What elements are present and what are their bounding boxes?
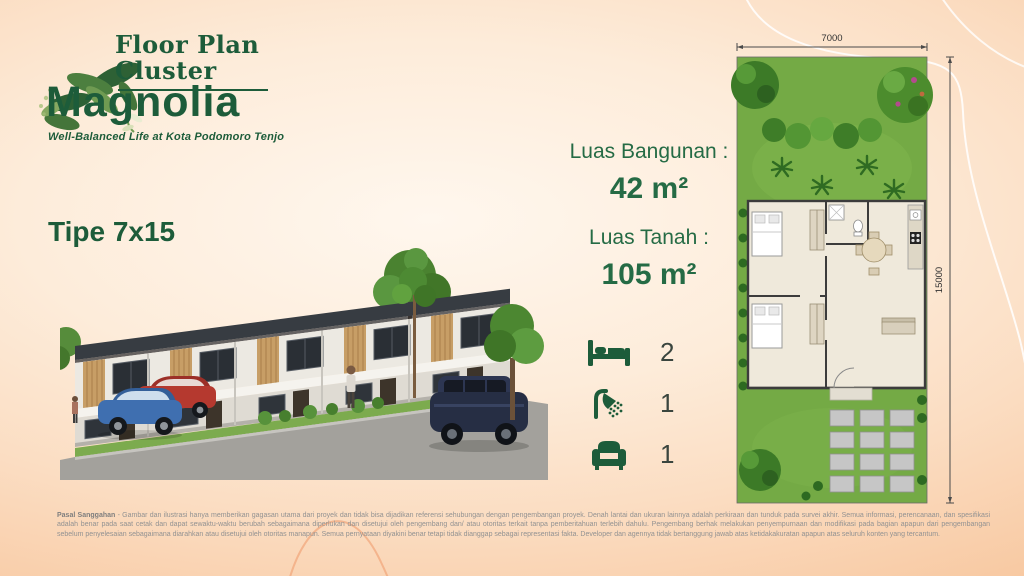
bed-icon <box>586 336 632 370</box>
feature-bathrooms: 1 <box>586 378 674 429</box>
bathroom-count: 1 <box>660 388 674 419</box>
house-footprint <box>748 201 925 400</box>
house-render-illustration <box>60 246 548 480</box>
feature-bedrooms: 2 <box>586 327 674 378</box>
shower-icon <box>586 387 632 421</box>
disclaimer-title: Pasal Sanggahan <box>57 512 115 519</box>
logo-title: Floor Plan Cluster <box>115 32 259 84</box>
lot-depth-dimension: 15000 <box>934 267 945 293</box>
living-room-count: 1 <box>660 439 674 470</box>
floor-plan-illustration: 7000 15000 <box>722 18 972 510</box>
sofa-icon <box>586 438 632 472</box>
dimension-line-right <box>946 57 954 503</box>
logo: Floor Plan Cluster Magnolia Well-Balance… <box>40 20 350 155</box>
terrace <box>830 388 872 400</box>
disclaimer-text: - Gambar dan ilustrasi hanya memberikan … <box>57 512 990 538</box>
house-type-label: Tipe 7x15 <box>48 216 175 248</box>
kitchen <box>908 205 923 269</box>
disclaimer: Pasal Sanggahan - Gambar dan ilustrasi h… <box>57 511 990 539</box>
bed-symbol-2 <box>752 304 782 348</box>
dimension-line-top <box>737 43 927 51</box>
feature-list: 2 1 <box>586 327 674 480</box>
bedroom-count: 2 <box>660 337 674 368</box>
logo-title-line1: Floor Plan <box>115 32 259 58</box>
lot-width-dimension: 7000 <box>821 33 842 44</box>
bed-symbol-1 <box>752 212 782 256</box>
person-figure-small <box>72 396 78 423</box>
brochure-page: Floor Plan Cluster Magnolia Well-Balance… <box>0 0 1024 576</box>
feature-living-room: 1 <box>586 429 674 480</box>
cluster-name: Magnolia <box>46 78 240 127</box>
logo-tagline: Well-Balanced Life at Kota Podomoro Tenj… <box>48 131 284 143</box>
living-sofa <box>882 318 915 334</box>
